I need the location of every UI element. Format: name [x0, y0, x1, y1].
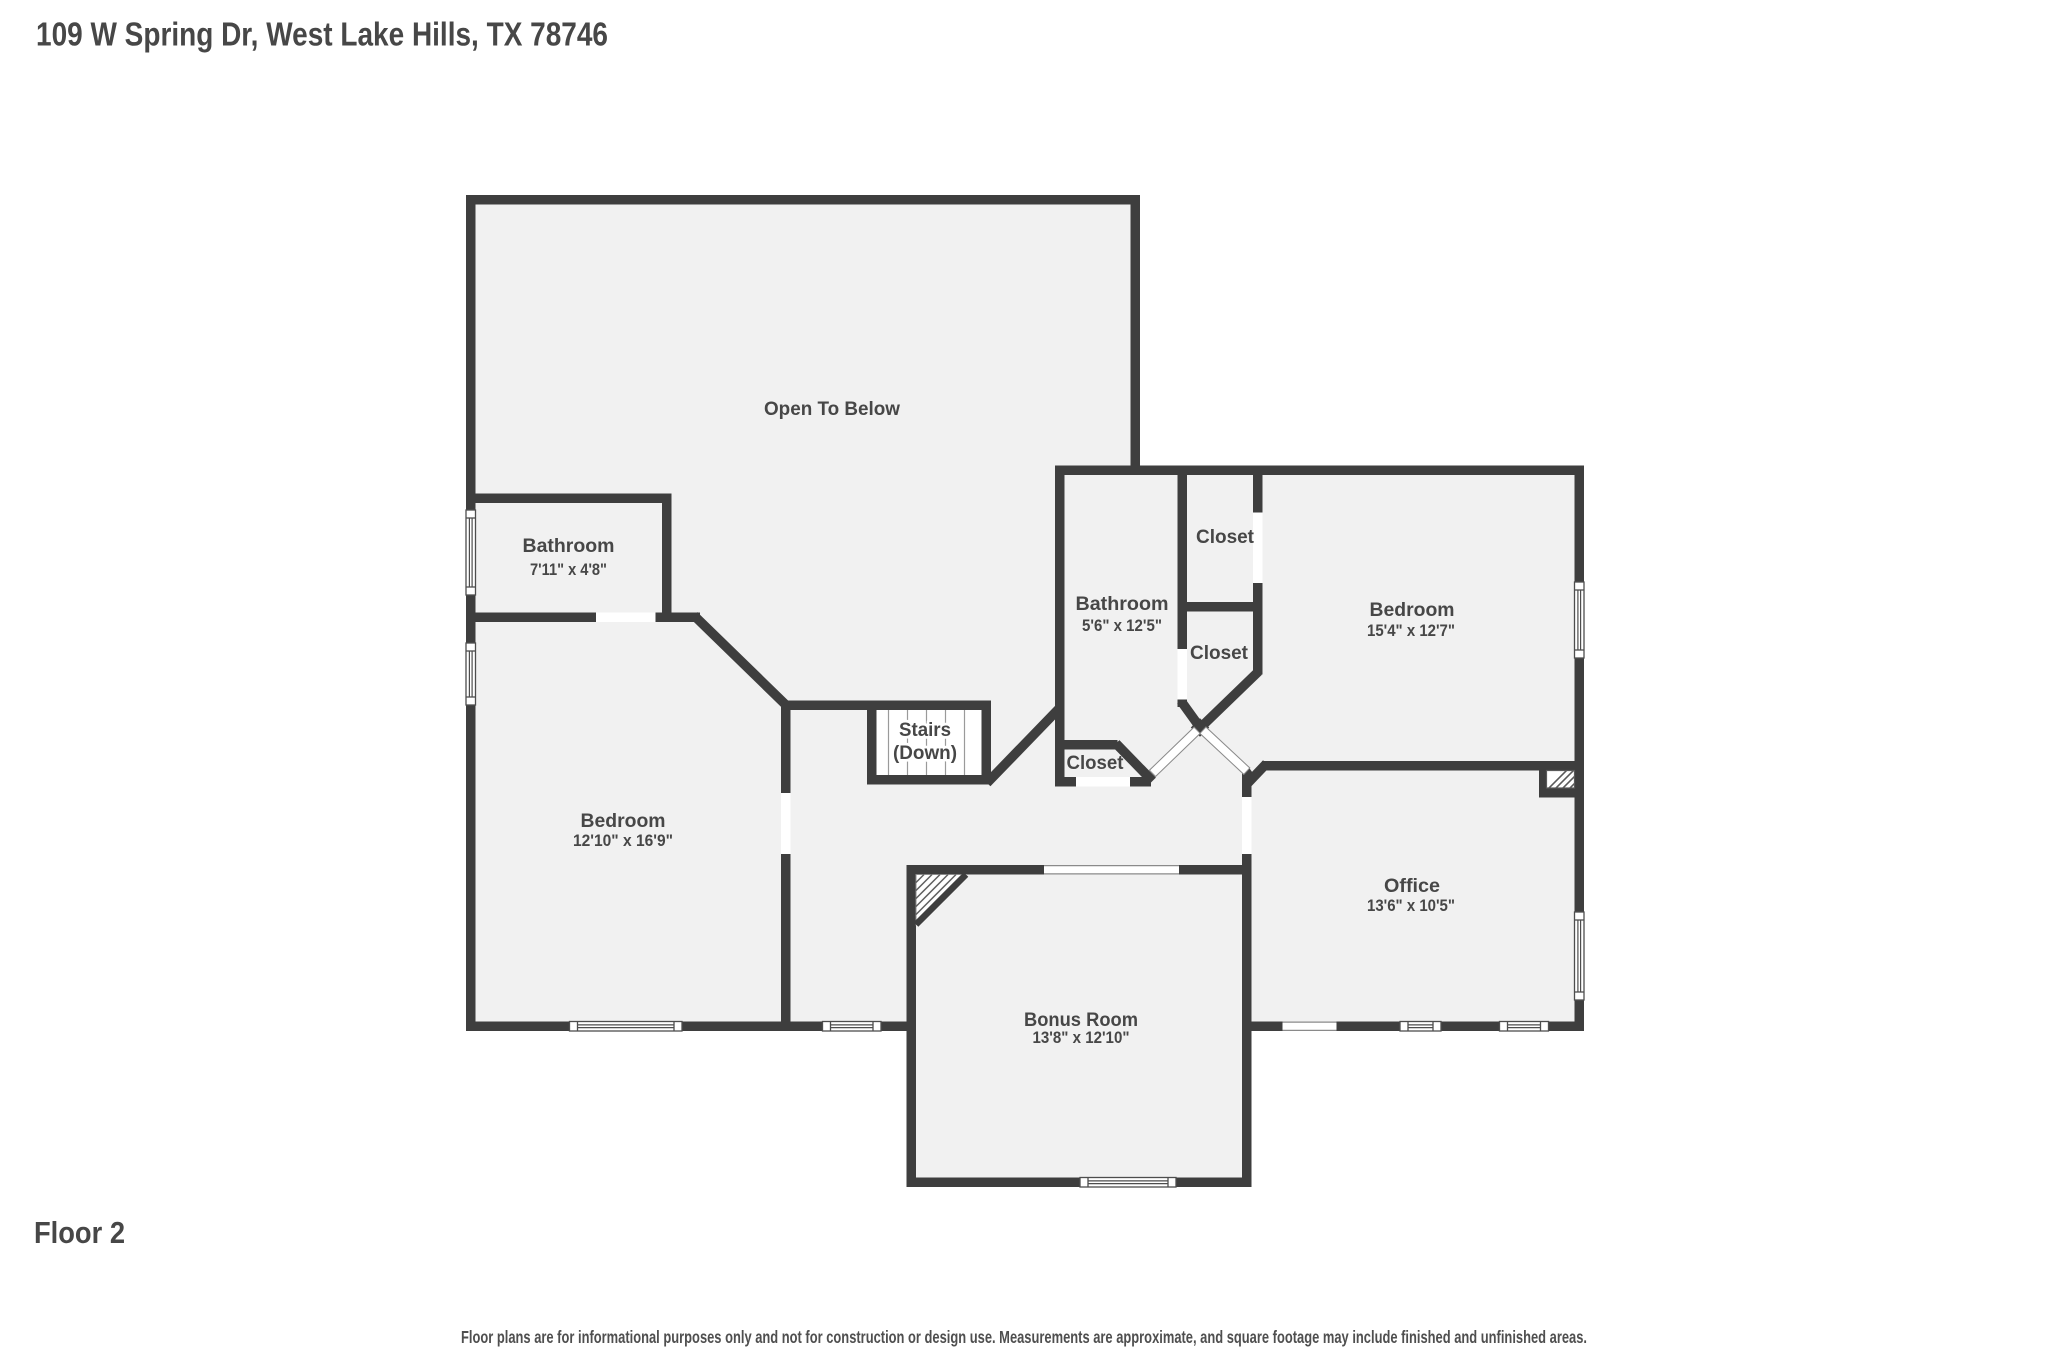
svg-text:7'11" x 4'8": 7'11" x 4'8": [530, 561, 607, 579]
svg-text:Floor plans are for informatio: Floor plans are for informational purpos…: [461, 1327, 1587, 1347]
svg-text:13'6" x 10'5": 13'6" x 10'5": [1367, 897, 1455, 915]
svg-text:13'8" x 12'10": 13'8" x 12'10": [1033, 1029, 1130, 1047]
svg-text:Floor 2: Floor 2: [34, 1215, 125, 1250]
svg-text:Bathroom: Bathroom: [1076, 594, 1169, 615]
svg-text:(Down): (Down): [893, 743, 957, 764]
svg-text:Open To Below: Open To Below: [764, 399, 900, 420]
svg-text:Bedroom: Bedroom: [581, 811, 666, 832]
svg-text:Closet: Closet: [1067, 753, 1125, 774]
svg-text:Office: Office: [1384, 876, 1440, 897]
svg-text:109 W Spring Dr, West Lake Hil: 109 W Spring Dr, West Lake Hills, TX 787…: [36, 17, 608, 54]
svg-text:Closet: Closet: [1196, 527, 1255, 548]
svg-text:15'4" x 12'7": 15'4" x 12'7": [1367, 622, 1455, 640]
svg-text:Stairs: Stairs: [899, 720, 951, 741]
svg-text:Bedroom: Bedroom: [1370, 600, 1455, 621]
svg-text:Bathroom: Bathroom: [523, 536, 615, 557]
svg-text:12'10" x 16'9": 12'10" x 16'9": [573, 832, 673, 850]
svg-text:Bonus Room: Bonus Room: [1024, 1010, 1138, 1031]
svg-text:Closet: Closet: [1190, 643, 1249, 664]
svg-text:5'6" x 12'5": 5'6" x 12'5": [1082, 617, 1162, 635]
